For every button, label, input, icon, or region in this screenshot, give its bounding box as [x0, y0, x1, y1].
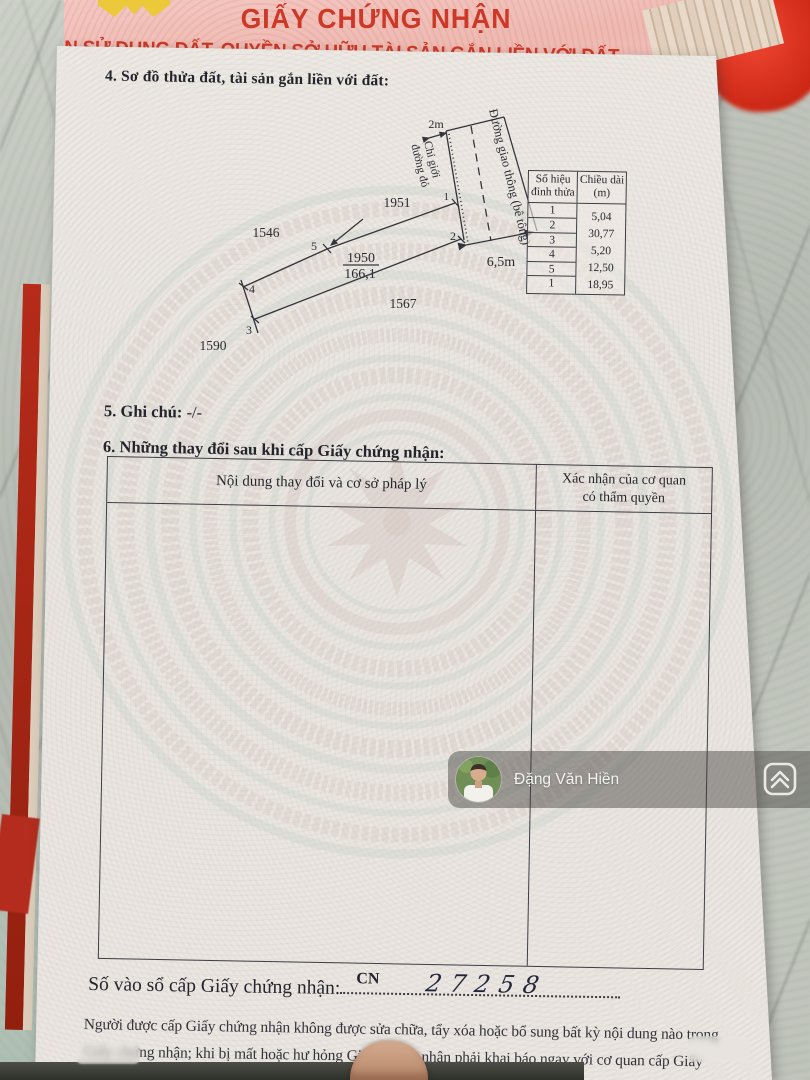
vertex-id: 5 [527, 262, 576, 277]
parcel-area-label: 166,1 [344, 267, 376, 282]
double-chevron-house-logo-icon [763, 762, 797, 796]
vertex-table-col1-header: Số hiệu đỉnh thửa [528, 171, 578, 203]
adjacent-parcel-1590: 1590 [200, 338, 227, 353]
registry-label: Số vào sổ cấp Giấy chứng nhận: [88, 974, 340, 1000]
avatar [456, 757, 501, 802]
setback-dim-label: 2m [428, 117, 444, 131]
registry-number-handwritten: 27258 [424, 969, 551, 999]
edge-4-5 [243, 249, 327, 287]
edge-length: 5,04 [578, 209, 626, 227]
vertex-table-col2-header: Chiều dài (m) [578, 172, 626, 204]
vertex-id: 4 [528, 247, 577, 262]
setback-dimension-line [429, 133, 446, 138]
vertex-length-table: Số hiệu đỉnh thửa Chiều dài (m) 1 2 3 4 … [526, 170, 627, 295]
vertex-1-label: 1 [444, 191, 450, 203]
vertex-4-label: 4 [249, 282, 255, 296]
vertex-id: 2 [528, 218, 577, 233]
owner-name: Đặng Văn Hiền [514, 771, 619, 789]
vertex-3-label: 3 [246, 323, 252, 337]
section4-heading: 4. Sơ đồ thửa đất, tài sản gắn liền với … [105, 68, 389, 91]
person-photo-icon [456, 757, 501, 802]
certificate-page: 4. Sơ đồ thửa đất, tài sản gắn liền với … [0, 0, 810, 1080]
blur-smudge [76, 1042, 140, 1064]
road-width-dim-label: 6,5m [487, 255, 516, 270]
adjacent-parcel-1546: 1546 [253, 225, 280, 240]
table-edge-shadow [0, 1062, 584, 1080]
changes-table-col2-header: Xác nhận của cơ quan có thẩm quyền [536, 465, 712, 513]
red-line-boundary-label: Chỉ giới đường đỏ [408, 140, 443, 189]
edge-length: 5,20 [577, 243, 625, 261]
parcel-diagram: 2m 6,5m Đường giao thông (bê tông) Chỉ g… [190, 104, 550, 374]
vertex-id: 1 [527, 276, 576, 291]
adjacent-parcel-1951: 1951 [384, 195, 411, 210]
section5-heading: 5. Ghi chú: [104, 401, 183, 421]
section5-value: -/- [182, 403, 202, 422]
vertex-id-column: 1 2 3 4 5 1 [527, 203, 578, 293]
road-near-edge [446, 131, 464, 240]
changes-table-col1-header: Nội dung thay đổi và cơ sở pháp lý [107, 457, 537, 510]
section5-line: 5. Ghi chú: -/- [104, 401, 202, 423]
changes-table-content-cell [99, 503, 536, 966]
registry-prefix: CN [356, 970, 379, 988]
changes-table: Nội dung thay đổi và cơ sở pháp lý Xác n… [98, 456, 713, 970]
red-line-boundary [449, 134, 468, 243]
road-centerline [471, 126, 491, 241]
vertex-id: 3 [528, 233, 577, 248]
vertex-id: 1 [528, 203, 577, 218]
edge-length-column: 5,04 30,77 5,20 12,50 18,95 [577, 204, 626, 294]
parcel-number-label: 1950 [347, 251, 375, 266]
registry-number-line: Số vào sổ cấp Giấy chứng nhận: CN 27258 [88, 952, 609, 1006]
adjacent-parcel-1567: 1567 [390, 296, 417, 311]
vertex-2-label: 2 [450, 229, 456, 243]
owner-watermark-band: Đặng Văn Hiền [448, 751, 810, 808]
blur-smudge [688, 1036, 750, 1062]
vertex-5-label: 5 [311, 239, 317, 253]
edge-length: 12,50 [577, 260, 625, 278]
edge-length: 18,95 [577, 277, 625, 295]
changes-table-confirmation-cell [528, 511, 711, 969]
edge-length: 30,77 [577, 226, 625, 244]
